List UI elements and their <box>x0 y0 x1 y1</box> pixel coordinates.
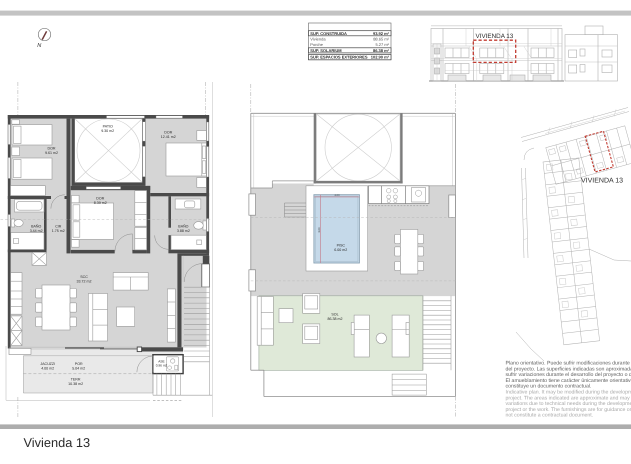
svg-text:10.38 m2: 10.38 m2 <box>68 382 83 386</box>
svg-text:Vivienda 13: Vivienda 13 <box>24 435 91 450</box>
svg-text:not constitute a contractual d: not constitute a contractual document. <box>506 413 594 419</box>
svg-text:8.39 m2: 8.39 m2 <box>94 201 107 205</box>
svg-text:PISC: PISC <box>337 244 346 248</box>
svg-text:9.61 m2: 9.61 m2 <box>45 151 58 155</box>
svg-text:JACUZZI: JACUZZI <box>40 362 55 366</box>
svg-text:9.30 m2: 9.30 m2 <box>101 129 114 133</box>
svg-text:93.92 m²: 93.92 m² <box>373 31 390 36</box>
svg-text:VIVIENDA 13: VIVIENDA 13 <box>581 178 623 185</box>
svg-text:SOL: SOL <box>331 313 338 317</box>
svg-text:6.00 m2: 6.00 m2 <box>334 248 347 252</box>
svg-text:SUP. SOLARIUM: SUP. SOLARIUM <box>310 48 342 53</box>
svg-text:5.27 m²: 5.27 m² <box>375 42 389 47</box>
svg-text:PATIO: PATIO <box>103 124 113 128</box>
svg-text:4.00 m2: 4.00 m2 <box>41 367 54 371</box>
svg-text:VIVIENDA 13: VIVIENDA 13 <box>476 33 514 40</box>
svg-text:SCC: SCC <box>80 275 88 279</box>
svg-text:86.38 m²: 86.38 m² <box>373 48 390 53</box>
svg-text:1.75 m2: 1.75 m2 <box>52 229 65 233</box>
svg-text:SUP. CONSTRUIDA: SUP. CONSTRUIDA <box>310 31 347 36</box>
svg-text:0.96 m2: 0.96 m2 <box>156 364 168 368</box>
svg-text:BAÑO: BAÑO <box>178 223 188 228</box>
svg-text:88.65 m²: 88.65 m² <box>373 37 389 42</box>
svg-text:5.04 m2: 5.04 m2 <box>72 367 85 371</box>
svg-text:TERR: TERR <box>71 378 81 382</box>
svg-text:DOR: DOR <box>48 147 56 151</box>
svg-text:Vivienda: Vivienda <box>310 37 326 42</box>
svg-text:33.72 m2: 33.72 m2 <box>77 279 92 283</box>
svg-text:2.00: 2.00 <box>334 194 340 197</box>
svg-text:DOR: DOR <box>164 131 172 135</box>
svg-text:102.90 m²: 102.90 m² <box>371 55 390 60</box>
svg-text:BAÑO: BAÑO <box>31 223 41 228</box>
svg-text:DOR: DOR <box>96 196 104 200</box>
svg-text:POR: POR <box>75 362 83 366</box>
svg-text:3.44 m2: 3.44 m2 <box>30 229 43 233</box>
svg-text:CIR: CIR <box>55 224 62 228</box>
svg-text:86.38 m2: 86.38 m2 <box>328 317 343 321</box>
svg-text:12.41 m2: 12.41 m2 <box>161 135 176 139</box>
svg-text:Porche: Porche <box>310 42 323 47</box>
svg-text:3.88 m2: 3.88 m2 <box>177 229 190 233</box>
svg-text:3.00: 3.00 <box>318 227 321 233</box>
svg-text:SUP. ESPACIOS EXTERIORES: SUP. ESPACIOS EXTERIORES <box>310 55 368 60</box>
